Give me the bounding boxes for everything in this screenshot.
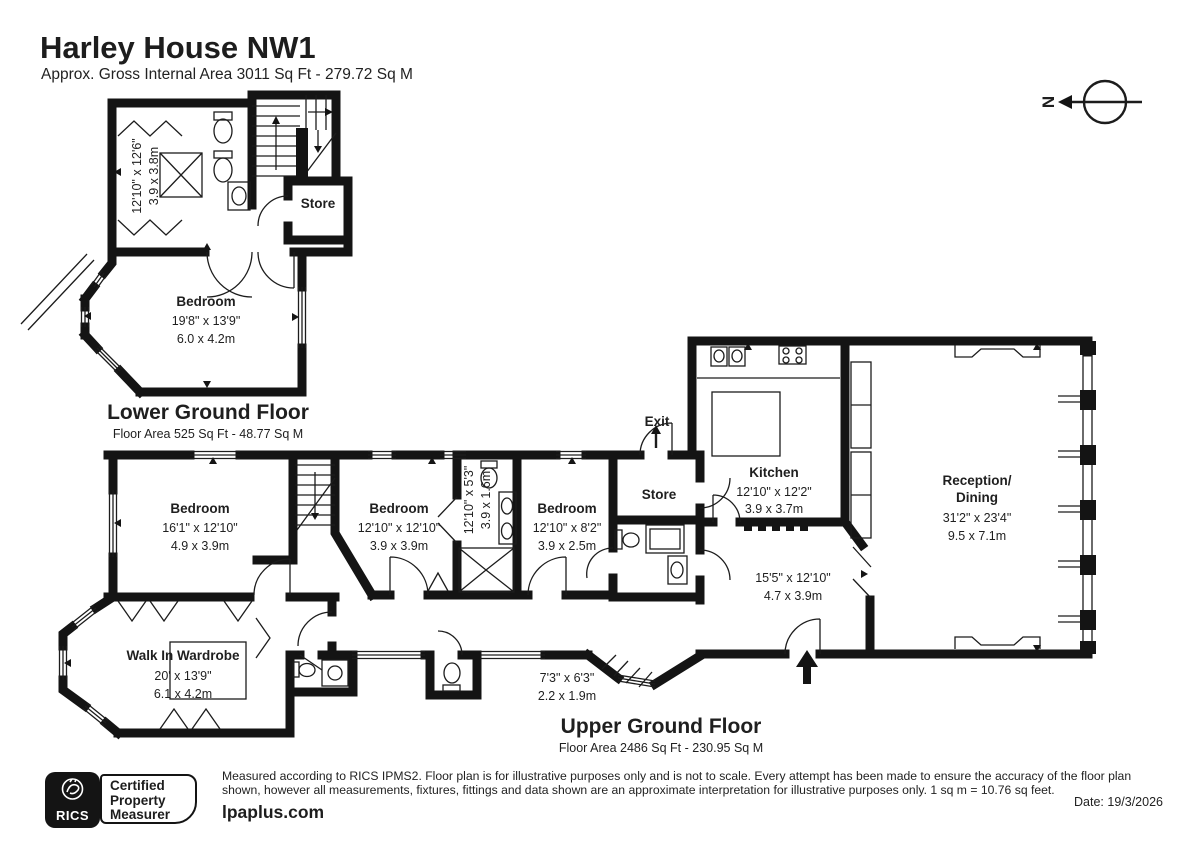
disclaimer-text: Measured according to RICS IPMS2. Floor … (222, 770, 1167, 798)
wardrobe-fixtures (118, 601, 348, 729)
rics-label: RICS (45, 808, 100, 823)
room-dims-lobby-ft: 7'3" x 6'3" (540, 671, 595, 685)
staircase (295, 465, 335, 530)
room-label-reception-line2: Dining (956, 490, 998, 505)
store-bathroom-fixtures (615, 525, 687, 584)
room-label-bedroom3: Bedroom (537, 501, 596, 516)
room-dims-bedroom2-m: 3.9 x 3.9m (370, 539, 428, 553)
lower-ground-floor-plan: 12'10" x 12'6" 3.9 x 3.8m Store Bedroom … (21, 95, 348, 441)
room-label-bedroom2: Bedroom (369, 501, 428, 516)
floorplan-page: Harley House NW1 Approx. Gross Internal … (0, 0, 1200, 848)
windows (21, 254, 306, 373)
date-label: Date: 19/3/2026 (1000, 795, 1163, 809)
room-dims-bedroom-lgf-m: 6.0 x 4.2m (177, 332, 235, 346)
certified-line-1: Certified (110, 779, 195, 794)
reception-window-mullions (1058, 341, 1096, 654)
room-dims-kitchen-ft: 12'10" x 12'2" (736, 485, 812, 499)
room-dims-wardrobe-m: 6.1 x 4.2m (154, 687, 212, 701)
rics-logo: RICS (45, 772, 100, 828)
exit-label: Exit (645, 414, 670, 429)
room-label-bedroom1: Bedroom (170, 501, 229, 516)
room-dims-hall-ft: 15'5" x 12'10" (755, 571, 831, 585)
room-dims-reception-m: 9.5 x 7.1m (948, 529, 1006, 543)
certified-property-measurer-badge: Certified Property Measurer (100, 774, 197, 824)
room-label-reception-line1: Reception/ (942, 473, 1011, 488)
entrance-arrow-icon (796, 650, 818, 684)
room-label-store-ugf: Store (642, 487, 677, 502)
room-dims-bedroom1-ft: 16'1" x 12'10" (162, 521, 238, 535)
staircase (252, 95, 336, 181)
room-dims-bedroom2-ft: 12'10" x 12'10" (358, 521, 440, 535)
disclaimer-line-2: however all measurements, fixtures, fitt… (264, 783, 1055, 797)
room-dims-shower-m: 3.9 x 3.8m (147, 147, 161, 205)
certified-line-2: Property (110, 794, 195, 809)
north-arrow-compass-icon: N (1039, 81, 1143, 123)
floor-plan-svg: N (0, 0, 1200, 848)
room-dims-lobby-m: 2.2 x 1.9m (538, 689, 596, 703)
room-dims-bathroom-ft: 12'10" x 5'3" (462, 466, 476, 535)
floor-title-lower-ground: Lower Ground Floor (107, 401, 309, 424)
floor-title-upper-ground: Upper Ground Floor (561, 715, 762, 738)
room-dims-bedroom3-m: 3.9 x 2.5m (538, 539, 596, 553)
floor-area-upper-ground: Floor Area 2486 Sq Ft - 230.95 Sq M (559, 741, 763, 755)
room-label-wardrobe: Walk In Wardrobe (126, 648, 240, 663)
rics-lion-icon (45, 772, 100, 806)
room-label-bedroom-lgf: Bedroom (176, 294, 235, 309)
room-label-store-lgf: Store (301, 196, 336, 211)
compass-north-label: N (1039, 96, 1058, 108)
certified-line-3: Measurer (110, 808, 195, 823)
room-dims-bathroom-m: 3.9 x 1.6m (479, 471, 493, 529)
room-dims-bedroom-lgf-ft: 19'8" x 13'9" (172, 314, 241, 328)
room-dims-bedroom3-ft: 12'10" x 8'2" (533, 521, 602, 535)
room-dims-wardrobe-ft: 20' x 13'9" (154, 669, 211, 683)
room-dims-hall-m: 4.7 x 3.9m (764, 589, 822, 603)
room-dims-bedroom1-m: 4.9 x 3.9m (171, 539, 229, 553)
room-dims-shower-ft: 12'10" x 12'6" (130, 138, 144, 214)
website-text: lpaplus.com (222, 802, 324, 823)
room-dims-reception-ft: 31'2" x 23'4" (943, 511, 1012, 525)
room-label-kitchen: Kitchen (749, 465, 799, 480)
doors (207, 196, 294, 297)
floor-area-lower-ground: Floor Area 525 Sq Ft - 48.77 Sq M (113, 427, 303, 441)
room-dims-kitchen-m: 3.9 x 3.7m (745, 502, 803, 516)
